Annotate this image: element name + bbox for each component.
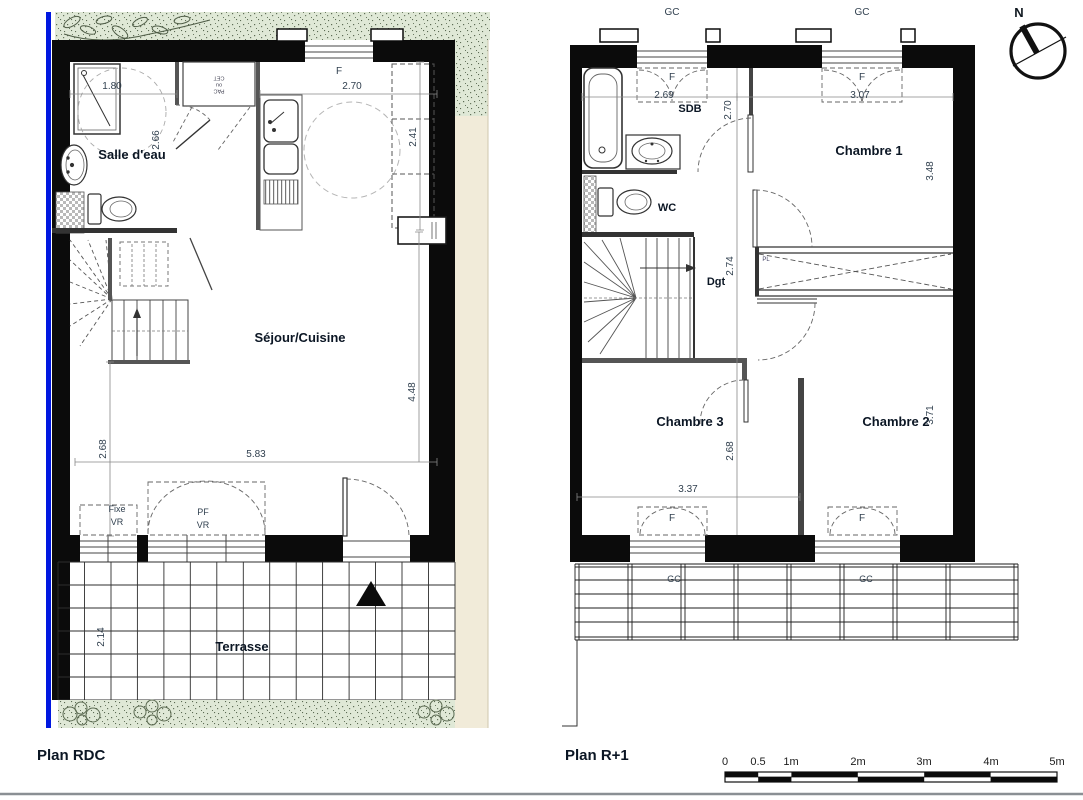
north-label: N xyxy=(1014,6,1023,19)
dim-rdc-2-68: 2.68 xyxy=(99,439,109,458)
rdc-walls xyxy=(52,40,455,700)
vegetation-band-bottom xyxy=(58,700,455,728)
scale-label-2m: 2m xyxy=(850,757,865,768)
dim-r1-3-37: 3.37 xyxy=(678,485,697,495)
room-label-chambre-2: Chambre 2 xyxy=(862,415,929,428)
scale-label-5m: 5m xyxy=(1049,757,1064,768)
window-label-f-ch3: F xyxy=(669,514,675,524)
window-label-f-sdb: F xyxy=(669,73,675,83)
dim-rdc-5-83: 5.83 xyxy=(246,450,265,460)
room-label-dgt: Dgt xyxy=(707,277,725,288)
wall-niche xyxy=(398,217,446,244)
dim-rdc-2-70: 2.70 xyxy=(342,82,361,92)
entry-door-leaf xyxy=(343,478,347,536)
dim-r1-3-48: 3.48 xyxy=(926,161,936,180)
rdc-bottom-openings xyxy=(80,535,410,562)
dim-r1-2-70: 2.70 xyxy=(724,100,734,119)
balcony-outline-line xyxy=(562,640,577,726)
ch2-ch3-partition xyxy=(798,378,804,535)
gc-label-top-left: GC xyxy=(665,8,680,18)
scale-label-1m: 1m xyxy=(783,757,798,768)
room-label-wc: WC xyxy=(658,203,676,214)
table-circle xyxy=(304,102,400,198)
dim-r1-2-69: 2.69 xyxy=(654,91,673,101)
r1-stairs xyxy=(582,237,747,380)
sdb-sink xyxy=(626,135,680,169)
rdc-stairs xyxy=(70,238,212,364)
dim-r1-3-07: 3.07 xyxy=(850,91,869,101)
bathtub xyxy=(584,68,622,168)
window-label-f-ch2: F xyxy=(859,514,865,524)
plan-r1 xyxy=(562,29,1018,726)
room-label-chambre-1: Chambre 1 xyxy=(835,144,902,157)
window-label-fixe-vr: VR xyxy=(111,518,124,527)
window-label-fixe: Fixe xyxy=(108,505,125,514)
dim-r1-2-74: 2.74 xyxy=(726,256,736,275)
r1-wc xyxy=(582,176,694,237)
window-label-f-ch1: F xyxy=(859,73,865,83)
room-label-chambre-3: Chambre 3 xyxy=(656,415,723,428)
north-compass xyxy=(1011,24,1066,78)
dim-rdc-1-80: 1.80 xyxy=(102,82,121,92)
room-label-salle-deau: Salle d'eau xyxy=(98,148,165,161)
window-label-pf-vr: VR xyxy=(197,521,210,530)
scale-label-0-5: 0.5 xyxy=(750,757,765,768)
bathroom-sink xyxy=(61,145,87,185)
scale-label-0: 0 xyxy=(722,757,728,768)
drawing-linework xyxy=(0,0,1083,800)
room-label-sejour-cuisine: Séjour/Cuisine xyxy=(254,331,345,344)
window-label-pf: PF xyxy=(197,508,209,517)
plan-r1-title: Plan R+1 xyxy=(565,748,629,763)
rdc-dimension-lines xyxy=(70,62,437,536)
window-label-f-rdc: F xyxy=(336,67,342,77)
r1-doors xyxy=(700,190,815,424)
gc-label-bottom-right: GC xyxy=(859,575,873,584)
floorplan-page: Salle d'eau 1.80 2.66 PAC ou CET F 2.70 … xyxy=(0,0,1083,800)
dim-rdc-2-41: 2.41 xyxy=(409,127,419,146)
gc-label-bottom-left: GC xyxy=(667,575,681,584)
property-line-blue xyxy=(46,12,51,728)
terrace-grid xyxy=(58,562,455,700)
dim-r1-2-68: 2.68 xyxy=(726,441,736,460)
balcony-grid xyxy=(575,564,1018,640)
closet-pl xyxy=(755,247,953,303)
shower xyxy=(74,64,120,134)
room-label-sdb: SDB xyxy=(678,104,701,115)
plan-rdc-title: Plan RDC xyxy=(37,748,105,763)
scale-bar xyxy=(725,772,1057,782)
closet-note-label: PAC ou CET xyxy=(211,75,228,94)
plan-rdc xyxy=(46,12,490,728)
scale-label-3m: 3m xyxy=(916,757,931,768)
dim-rdc-4-48: 4.48 xyxy=(408,382,418,401)
rdc-wc-toilet xyxy=(56,192,136,233)
kitchen-counter xyxy=(256,62,302,230)
dim-rdc-2-66: 2.66 xyxy=(152,130,162,149)
rdc-window-swings xyxy=(80,479,409,537)
closet-label-pl: PL xyxy=(762,257,769,263)
garden-path-strip xyxy=(455,40,488,728)
dim-rdc-2-14: 2.14 xyxy=(97,627,107,646)
scale-label-4m: 4m xyxy=(983,757,998,768)
room-label-terrasse: Terrasse xyxy=(215,640,268,653)
gc-label-top-right: GC xyxy=(855,8,870,18)
dim-r1-3-71: 3.71 xyxy=(926,405,936,424)
